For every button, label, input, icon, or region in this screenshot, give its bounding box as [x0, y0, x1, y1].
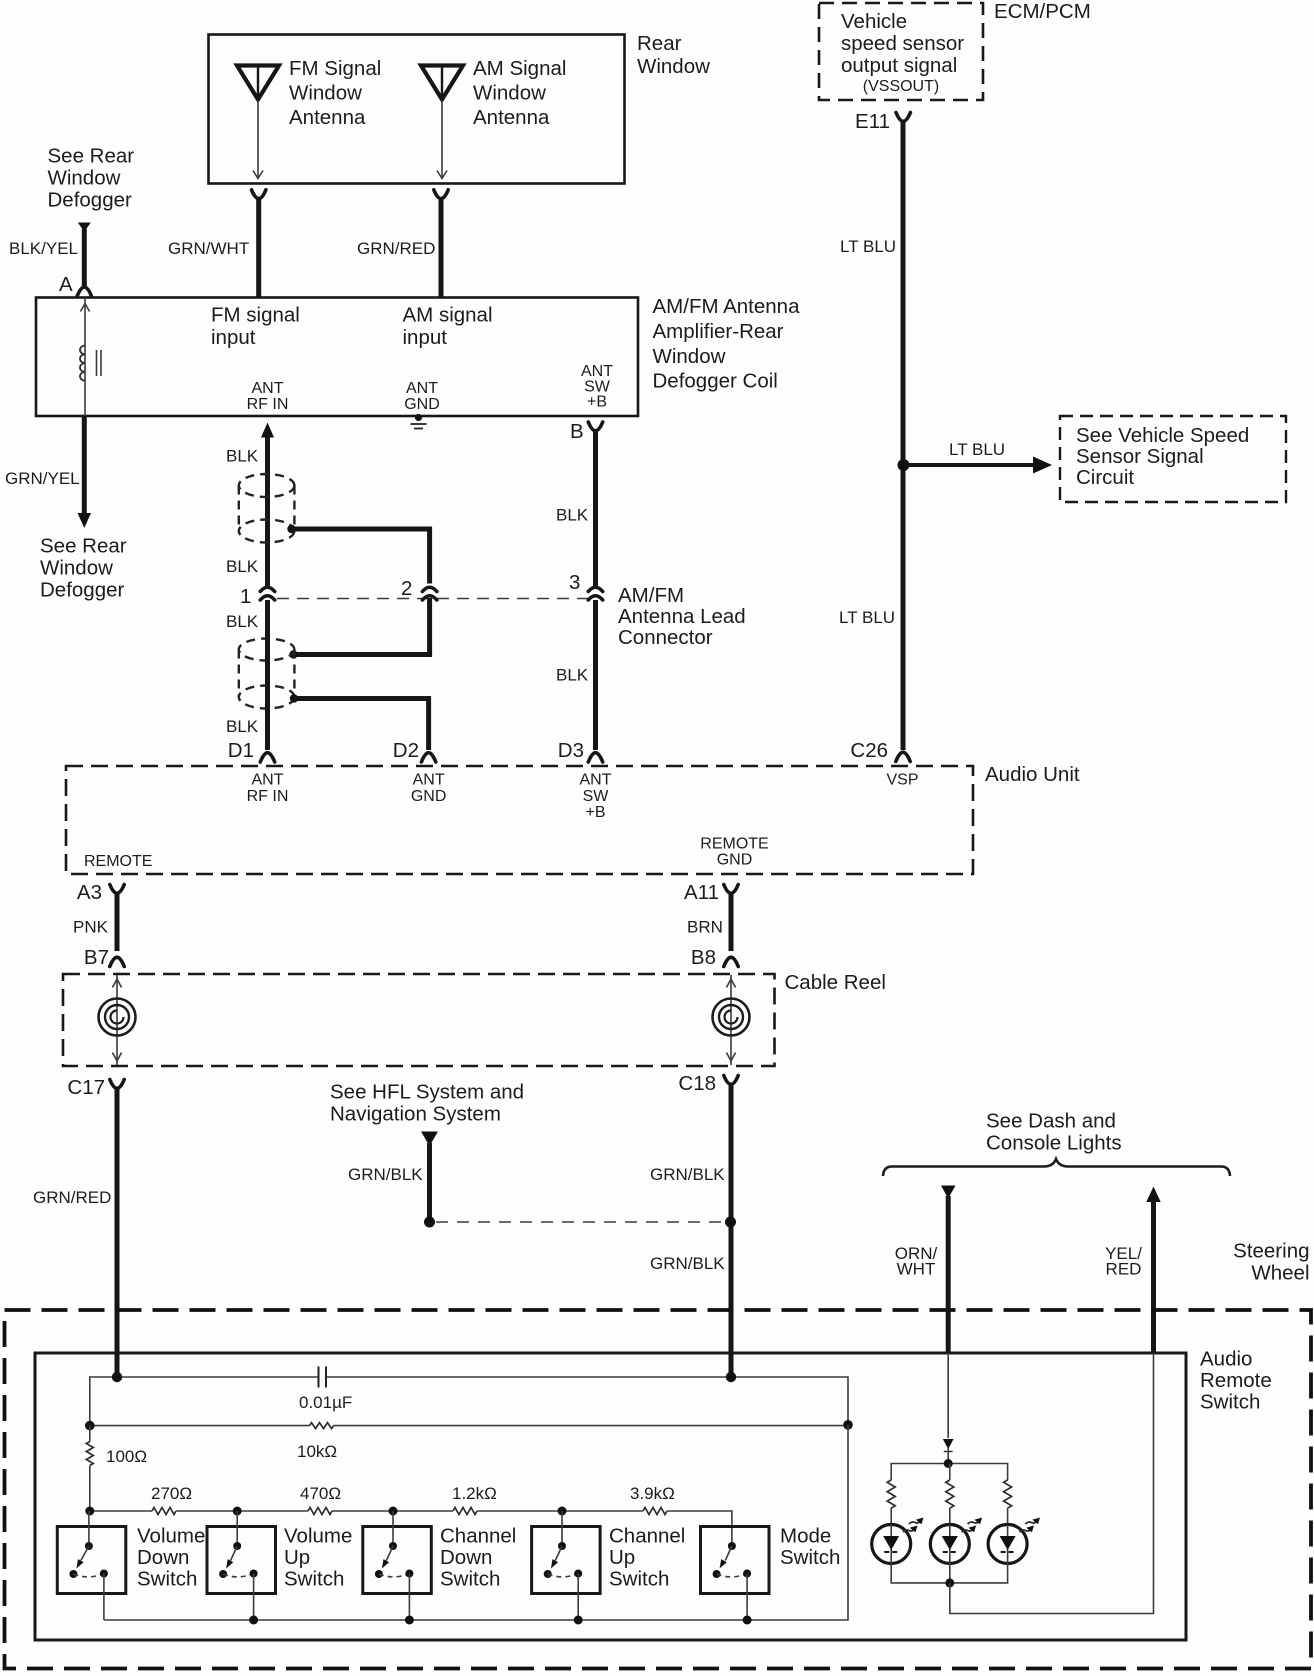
svg-text:Window: Window [48, 167, 121, 190]
svg-text:Channel: Channel [440, 1525, 516, 1548]
svg-text:LT BLU: LT BLU [949, 440, 1005, 459]
svg-text:See Dash and: See Dash and [986, 1110, 1116, 1133]
svg-text:ANT: ANT [413, 772, 445, 789]
svg-text:Switch: Switch [284, 1568, 344, 1591]
svg-text:2: 2 [401, 577, 412, 600]
svg-text:Switch: Switch [780, 1546, 840, 1569]
svg-text:BLK: BLK [556, 506, 589, 525]
svg-text:Window: Window [637, 55, 710, 78]
svg-text:Window: Window [473, 82, 546, 105]
svg-text:+B: +B [585, 804, 605, 821]
svg-text:BLK: BLK [226, 557, 259, 576]
svg-text:Channel: Channel [609, 1525, 685, 1548]
svg-text:1.2kΩ: 1.2kΩ [452, 1484, 497, 1503]
svg-text:Remote: Remote [1200, 1369, 1272, 1392]
svg-text:FM Signal: FM Signal [289, 57, 381, 80]
svg-text:B8: B8 [691, 946, 716, 969]
svg-text:Antenna: Antenna [289, 106, 366, 129]
svg-text:Navigation System: Navigation System [330, 1103, 501, 1126]
svg-text:BLK: BLK [556, 666, 589, 685]
svg-text:Console Lights: Console Lights [986, 1132, 1122, 1155]
svg-text:RED: RED [1106, 1260, 1142, 1279]
svg-text:GRN/BLK: GRN/BLK [650, 1254, 725, 1273]
svg-text:GND: GND [717, 852, 753, 869]
svg-text:Antenna Lead: Antenna Lead [618, 605, 746, 628]
svg-text:3.9kΩ: 3.9kΩ [630, 1484, 675, 1503]
svg-text:E11: E11 [855, 110, 890, 133]
svg-text:Audio Unit: Audio Unit [985, 763, 1080, 786]
svg-text:Antenna: Antenna [473, 106, 550, 129]
svg-text:100Ω: 100Ω [106, 1447, 147, 1466]
svg-text:Volume: Volume [284, 1525, 352, 1548]
svg-text:speed sensor: speed sensor [841, 32, 964, 55]
svg-text:Connector: Connector [618, 626, 713, 649]
svg-text:Steering: Steering [1233, 1240, 1309, 1263]
svg-text:Mode: Mode [780, 1525, 831, 1548]
svg-text:BLK: BLK [226, 717, 259, 736]
svg-text:BLK/YEL: BLK/YEL [9, 239, 78, 258]
svg-text:C26: C26 [850, 739, 888, 762]
svg-text:Sensor Signal: Sensor Signal [1076, 445, 1204, 468]
svg-text:Switch: Switch [1200, 1391, 1260, 1414]
svg-text:ANT: ANT [252, 380, 284, 397]
svg-text:GRN/BLK: GRN/BLK [348, 1165, 423, 1184]
svg-text:10kΩ: 10kΩ [297, 1442, 337, 1461]
svg-text:GND: GND [411, 788, 447, 805]
svg-text:WHT: WHT [897, 1260, 936, 1279]
svg-text:BLK: BLK [226, 612, 259, 631]
svg-text:REMOTE: REMOTE [84, 853, 152, 870]
svg-text:ECM/PCM: ECM/PCM [994, 0, 1091, 23]
svg-text:Window: Window [40, 557, 113, 580]
svg-text:PNK: PNK [73, 918, 109, 937]
svg-text:Window: Window [653, 345, 726, 368]
svg-text:RF IN: RF IN [247, 788, 289, 805]
svg-text:See Vehicle Speed: See Vehicle Speed [1076, 424, 1249, 447]
svg-text:Down: Down [440, 1546, 492, 1569]
svg-text:REMOTE: REMOTE [700, 836, 768, 853]
svg-text:BRN: BRN [687, 918, 723, 937]
svg-text:GRN/YEL: GRN/YEL [5, 469, 80, 488]
svg-text:See Rear: See Rear [48, 145, 135, 168]
svg-text:Audio: Audio [1200, 1348, 1252, 1371]
svg-text:A: A [59, 273, 73, 296]
svg-text:+B: +B [587, 394, 607, 411]
svg-text:Up: Up [284, 1546, 310, 1569]
svg-text:AM/FM: AM/FM [618, 584, 684, 607]
svg-text:FM signal: FM signal [211, 304, 300, 327]
svg-text:RF IN: RF IN [247, 396, 289, 413]
svg-text:Up: Up [609, 1546, 635, 1569]
svg-text:B7: B7 [84, 946, 109, 969]
svg-text:GRN/BLK: GRN/BLK [650, 1165, 725, 1184]
svg-text:Defogger: Defogger [48, 189, 133, 212]
svg-text:A3: A3 [77, 881, 102, 904]
svg-text:input: input [211, 326, 256, 349]
svg-text:Circuit: Circuit [1076, 466, 1134, 489]
svg-text:See HFL System and: See HFL System and [330, 1081, 524, 1104]
svg-text:470Ω: 470Ω [300, 1484, 341, 1503]
svg-text:Switch: Switch [137, 1568, 197, 1591]
svg-text:AM/FM Antenna: AM/FM Antenna [653, 295, 801, 318]
svg-text:Vehicle: Vehicle [841, 10, 907, 33]
svg-text:A11: A11 [684, 881, 719, 904]
svg-text:input: input [403, 326, 448, 349]
svg-text:Down: Down [137, 1546, 189, 1569]
svg-text:BLK: BLK [226, 447, 259, 466]
svg-text:3: 3 [569, 571, 580, 594]
svg-text:0.01µF: 0.01µF [299, 1393, 352, 1412]
svg-text:Volume: Volume [137, 1525, 205, 1548]
svg-text:GRN/RED: GRN/RED [33, 1188, 111, 1207]
svg-text:output signal: output signal [841, 54, 957, 77]
svg-text:C17: C17 [67, 1076, 105, 1099]
svg-text:GRN/RED: GRN/RED [357, 239, 435, 258]
svg-text:SW: SW [583, 788, 610, 805]
svg-text:Switch: Switch [609, 1568, 669, 1591]
svg-text:D3: D3 [558, 739, 584, 762]
svg-text:C18: C18 [678, 1072, 716, 1095]
svg-text:1: 1 [240, 585, 251, 608]
svg-text:B: B [570, 420, 584, 443]
svg-text:D2: D2 [393, 739, 419, 762]
svg-text:ANT: ANT [581, 363, 613, 380]
svg-text:Switch: Switch [440, 1568, 500, 1591]
svg-text:LT BLU: LT BLU [839, 608, 895, 627]
svg-text:Cable Reel: Cable Reel [785, 971, 886, 994]
svg-text:ANT: ANT [580, 772, 612, 789]
svg-text:270Ω: 270Ω [151, 1484, 192, 1503]
svg-text:Rear: Rear [637, 32, 682, 55]
svg-text:LT BLU: LT BLU [840, 237, 896, 256]
svg-text:Amplifier-Rear: Amplifier-Rear [653, 320, 784, 343]
svg-text:AM Signal: AM Signal [473, 57, 566, 80]
svg-text:Wheel: Wheel [1251, 1262, 1309, 1285]
svg-text:GND: GND [404, 396, 440, 413]
svg-text:D1: D1 [228, 739, 254, 762]
svg-text:GRN/WHT: GRN/WHT [168, 239, 249, 258]
svg-text:Window: Window [289, 82, 362, 105]
svg-text:See Rear: See Rear [40, 535, 127, 558]
svg-text:ANT: ANT [406, 380, 438, 397]
svg-text:Defogger: Defogger [40, 579, 125, 602]
svg-text:Defogger Coil: Defogger Coil [653, 370, 778, 393]
svg-text:ANT: ANT [252, 772, 284, 789]
svg-text:VSP: VSP [886, 772, 918, 789]
svg-text:(VSSOUT): (VSSOUT) [863, 78, 939, 95]
svg-text:AM signal: AM signal [403, 304, 493, 327]
